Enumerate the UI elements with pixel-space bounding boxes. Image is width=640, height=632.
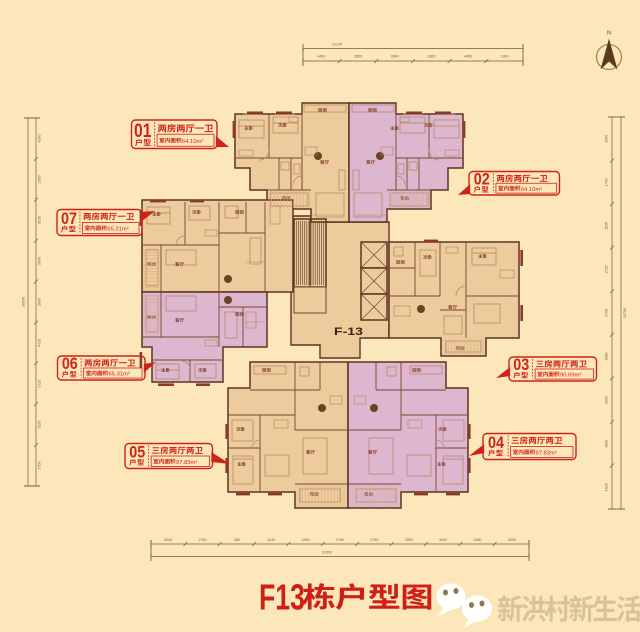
svg-text:04: 04 (488, 433, 504, 452)
svg-text:90.69m²: 90.69m² (560, 373, 581, 379)
svg-text:1900: 1900 (501, 55, 509, 59)
svg-text:4450: 4450 (464, 55, 472, 59)
svg-text:65.31m²: 65.31m² (107, 227, 128, 233)
svg-text:4260: 4260 (38, 134, 42, 142)
svg-text:3000: 3000 (605, 135, 609, 143)
svg-text:3000: 3000 (38, 257, 42, 265)
svg-text:2725: 2725 (605, 265, 609, 273)
svg-text:2880: 2880 (605, 353, 609, 361)
svg-text:4725: 4725 (38, 339, 42, 347)
svg-text:02: 02 (474, 169, 490, 188)
svg-text:3000: 3000 (605, 440, 609, 448)
svg-text:26500: 26500 (22, 297, 26, 307)
svg-text:3300: 3300 (405, 538, 413, 542)
svg-text:1625: 1625 (605, 483, 609, 491)
svg-text:3150: 3150 (38, 216, 42, 224)
svg-text:N: N (607, 31, 611, 37)
svg-text:280: 280 (234, 538, 240, 542)
svg-text:3240: 3240 (164, 538, 172, 542)
svg-text:2750: 2750 (199, 538, 207, 542)
svg-text:01: 01 (134, 121, 152, 142)
svg-text:3365: 3365 (38, 175, 42, 183)
svg-text:31300: 31300 (322, 551, 332, 555)
svg-text:1525: 1525 (605, 222, 609, 230)
svg-text:2840: 2840 (508, 538, 516, 542)
svg-text:3000: 3000 (38, 298, 42, 306)
svg-text:2380: 2380 (473, 538, 481, 542)
svg-text:64.10m²: 64.10m² (521, 187, 542, 193)
svg-text:21100: 21100 (332, 43, 342, 47)
svg-text:65.31m²: 65.31m² (109, 372, 130, 378)
svg-text:3440: 3440 (267, 538, 275, 542)
svg-text:3300: 3300 (427, 55, 435, 59)
svg-text:2750: 2750 (336, 538, 344, 542)
svg-text:2750: 2750 (370, 538, 378, 542)
svg-text:64.10m²: 64.10m² (182, 139, 203, 145)
svg-text:97.83m²: 97.83m² (536, 451, 557, 457)
svg-text:4400: 4400 (317, 55, 325, 59)
svg-text:97.83m²: 97.83m² (176, 460, 197, 466)
svg-text:3300: 3300 (302, 538, 310, 542)
svg-text:1750: 1750 (38, 462, 42, 470)
svg-text:24700: 24700 (623, 308, 627, 318)
svg-text:03: 03 (513, 355, 529, 374)
svg-text:3000: 3000 (605, 396, 609, 404)
svg-text:F-13: F-13 (334, 326, 363, 338)
svg-text:4725: 4725 (605, 309, 609, 317)
svg-text:1525: 1525 (38, 421, 42, 429)
svg-text:3440: 3440 (439, 538, 447, 542)
svg-text:3650: 3650 (354, 55, 362, 59)
svg-text:05: 05 (129, 442, 145, 461)
svg-text:06: 06 (62, 354, 78, 373)
svg-text:2725: 2725 (38, 380, 42, 388)
svg-text:07: 07 (61, 209, 77, 228)
svg-text:2840: 2840 (391, 55, 399, 59)
svg-text:1750: 1750 (605, 178, 609, 186)
svg-text:F13: F13 (259, 577, 305, 618)
